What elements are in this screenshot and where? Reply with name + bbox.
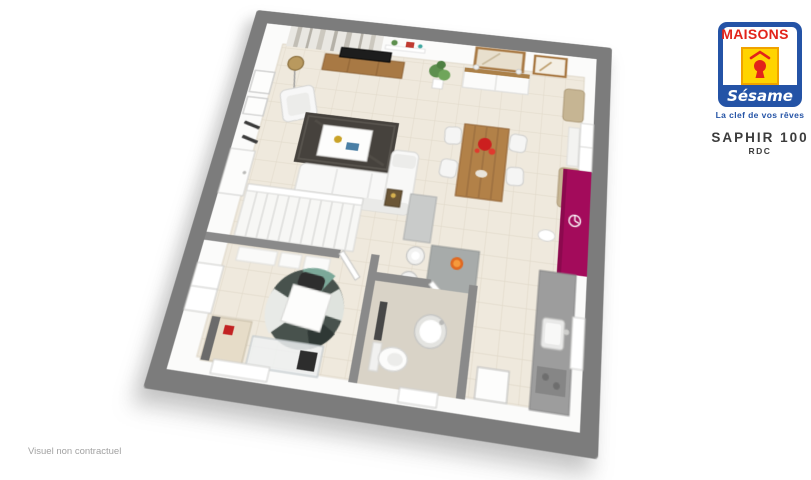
dining-window (566, 122, 593, 172)
floor-plan-3d (143, 10, 612, 459)
roof-icon (751, 52, 769, 58)
picture-frame-2 (243, 96, 268, 115)
sesame-wordmark: Sésame (718, 87, 802, 105)
disclaimer: Visuel non contractuel (28, 446, 121, 457)
dining-table (455, 124, 509, 202)
tagline: La clef de vos rêves (700, 110, 811, 120)
appliance (474, 367, 509, 404)
bar-cart (384, 189, 402, 207)
maisons-wordmark: MAISONS (718, 26, 792, 42)
cooktop (535, 366, 566, 397)
radiator (567, 127, 580, 166)
mirror (474, 48, 524, 72)
floor-plan-canvas (143, 10, 612, 459)
logo-yellow-square (741, 47, 779, 85)
coffee-table (317, 125, 373, 161)
logo: MAISONS Sésame (718, 22, 802, 107)
wall-art-frame (534, 56, 567, 77)
keyhole-icon (743, 49, 777, 83)
floor-label: RDC (700, 146, 811, 156)
kitchen-window (570, 317, 585, 370)
plan-title: SAPHIR 100 (700, 130, 811, 145)
